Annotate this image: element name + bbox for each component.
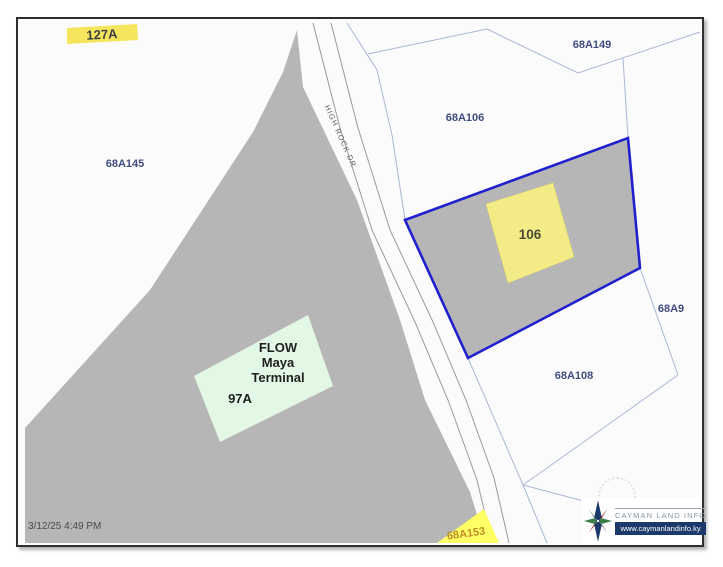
label-97a: 97A — [228, 391, 252, 406]
label-flow-line3: Terminal — [251, 370, 304, 385]
label-flow-line1: FLOW — [259, 340, 298, 355]
map-canvas[interactable]: 127A 68A145 68A149 68A106 106 68A9 68A10… — [18, 19, 702, 545]
boundary-68a149-branch — [623, 58, 628, 138]
label-68a106: 68A106 — [446, 112, 485, 124]
timestamp: 3/12/25 4:49 PM — [28, 521, 101, 532]
boundary-68a149-v — [487, 29, 700, 73]
parcel-97a-area[interactable] — [25, 30, 482, 543]
label-68a9: 68A9 — [658, 303, 684, 315]
logo-text-block: CAYMAN LAND INFO www.caymanlandinfo.ky — [615, 508, 706, 535]
cayman-land-info-logo: CAYMAN LAND INFO www.caymanlandinfo.ky — [581, 498, 700, 544]
compass-rose-icon — [583, 499, 613, 543]
label-flow-line2: Maya — [262, 355, 295, 370]
brand-name: CAYMAN LAND INFO — [615, 508, 706, 522]
map-frame: 127A 68A145 68A149 68A106 106 68A9 68A10… — [16, 17, 704, 547]
boundary-68a108-bottom — [523, 375, 678, 485]
label-68a149: 68A149 — [573, 39, 612, 51]
brand-website[interactable]: www.caymanlandinfo.ky — [615, 522, 706, 535]
boundary-68a106-68a149 — [368, 29, 487, 54]
map-viewer-screenshot: { "map": { "timestamp": "3/12/25 4:49 PM… — [0, 0, 723, 567]
label-68a145: 68A145 — [106, 158, 145, 170]
boundary-68a9-edge — [640, 268, 678, 375]
label-106: 106 — [519, 227, 542, 242]
label-127a: 127A — [86, 26, 118, 43]
label-68a108: 68A108 — [555, 370, 594, 382]
